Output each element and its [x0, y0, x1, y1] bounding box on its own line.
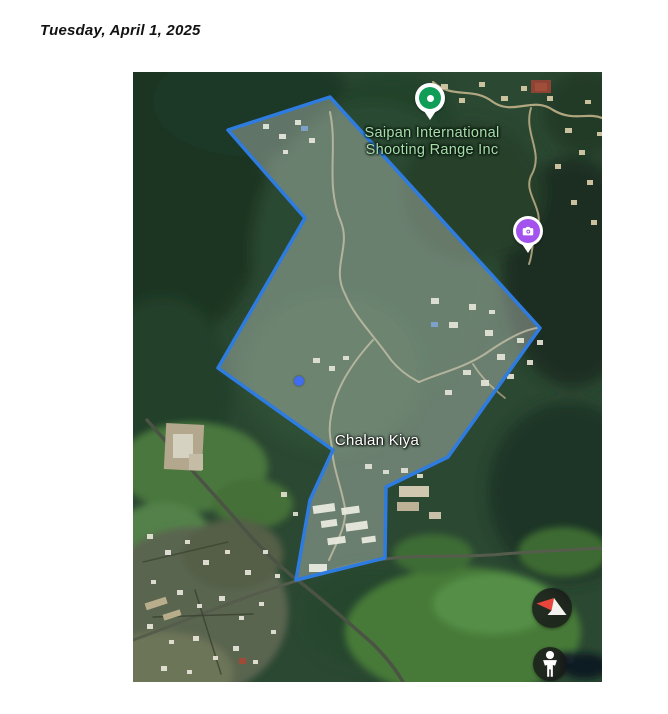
compass-icon: [532, 588, 572, 628]
photo-marker-pin[interactable]: [513, 216, 543, 253]
poi-pin-tail: [424, 111, 436, 120]
location-dot-icon: [294, 376, 304, 386]
page-root: { "page": { "date_header": "Tuesday, Apr…: [0, 0, 668, 714]
camera-icon: [521, 224, 535, 238]
camera-pin-circle: [513, 216, 543, 246]
shooting-range-label-line2: Shooting Range Inc: [302, 142, 562, 159]
date-header: Tuesday, April 1, 2025: [40, 22, 201, 39]
poi-pin-dot: [427, 95, 434, 102]
pegman-icon: [535, 649, 565, 679]
pegman-button[interactable]: [533, 647, 567, 681]
camera-pin-inner: [516, 219, 540, 243]
compass-button[interactable]: [532, 588, 572, 628]
shooting-range-label: Saipan International Shooting Range Inc: [302, 125, 562, 159]
locality-label: Chalan Kiya: [297, 432, 457, 449]
map-pin-icon: [415, 83, 445, 113]
camera-pin-tail: [522, 244, 534, 253]
poi-pin-inner: [419, 87, 441, 109]
shooting-range-pin[interactable]: [415, 83, 445, 120]
satellite-map[interactable]: Saipan International Shooting Range Inc …: [133, 72, 602, 682]
shooting-range-label-line1: Saipan International: [302, 125, 562, 142]
